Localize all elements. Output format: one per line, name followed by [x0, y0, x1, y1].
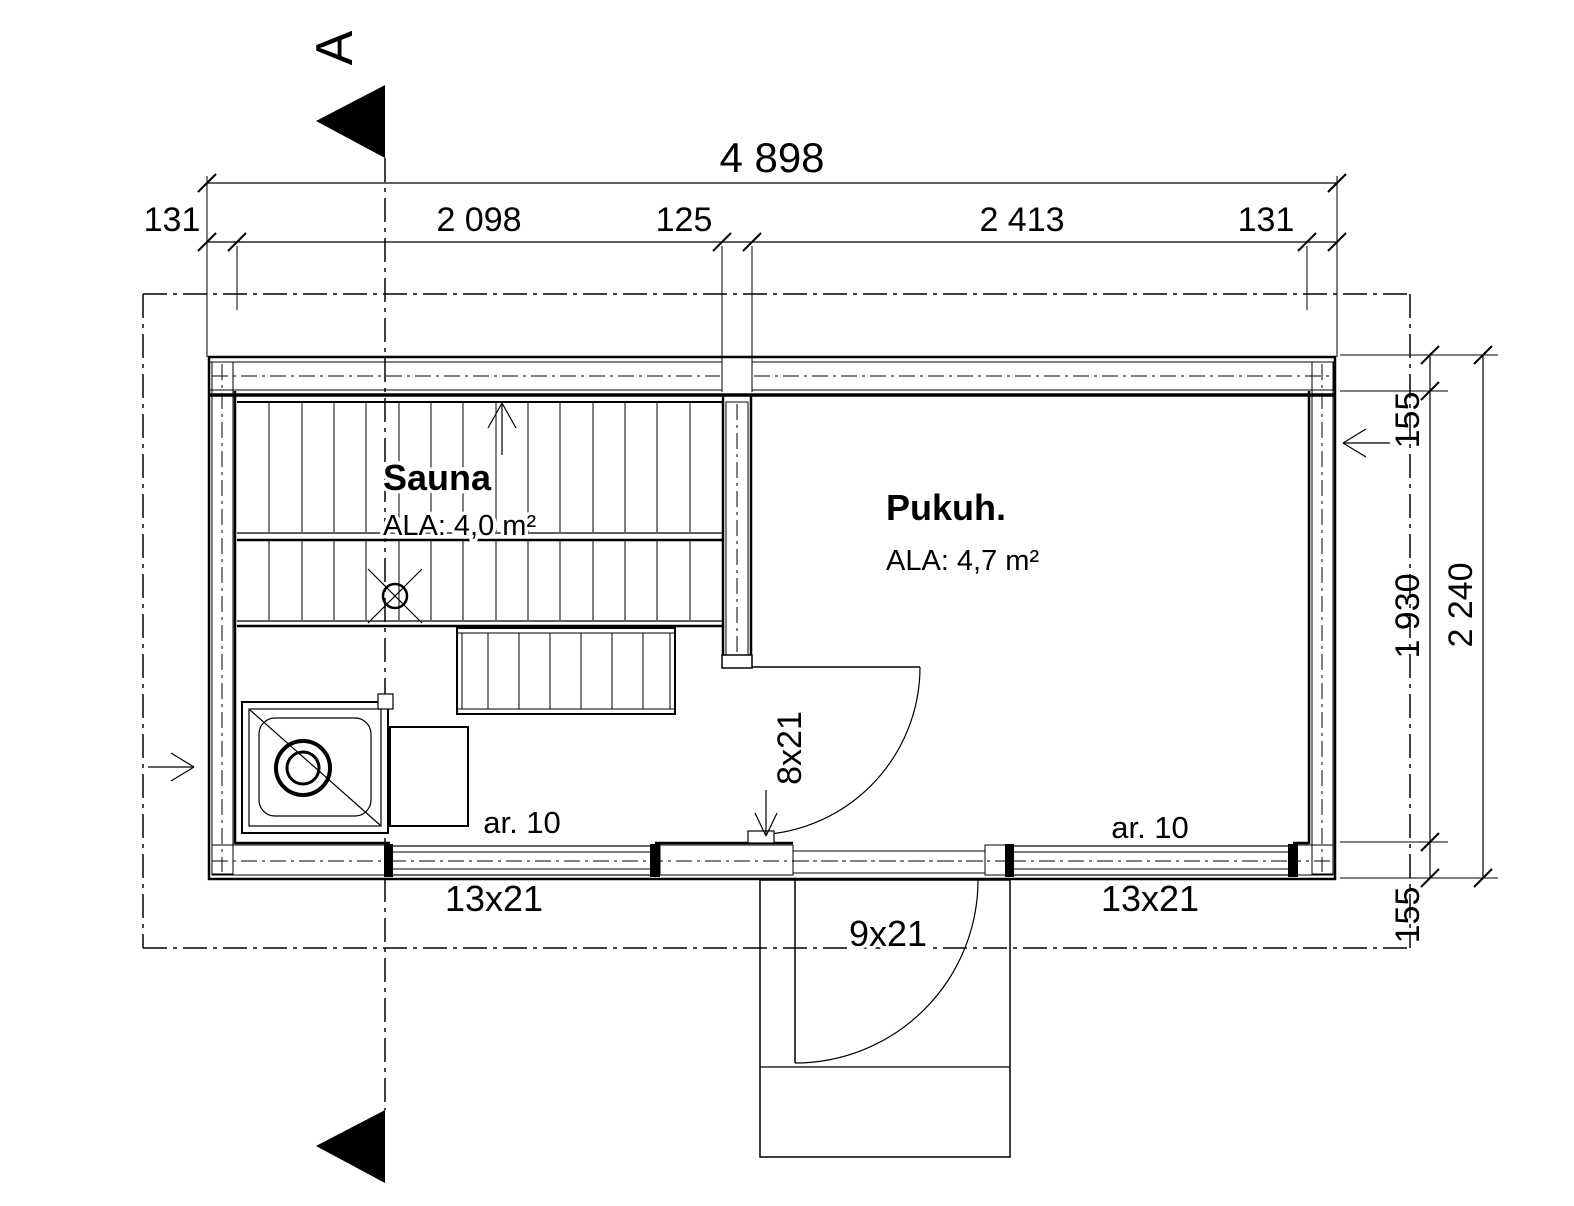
partition-wall [722, 395, 752, 668]
dim-overall-depth: 2 240 [1442, 562, 1480, 647]
vent-label-dressing: ar. 10 [1111, 810, 1189, 845]
section-triangle-bottom-icon [316, 1110, 385, 1183]
dim-overall-width: 4 898 [719, 134, 824, 181]
dim-depth-seg-1: 155 [1389, 392, 1427, 449]
stool [390, 727, 468, 826]
floor-plan-drawing: A A 4 898 131 2 098 125 2 413 131 [0, 0, 1574, 1206]
up-arrow-icon [488, 403, 516, 455]
door-label-interior: 8x21 [771, 711, 809, 785]
window-label-sauna: 13x21 [445, 878, 543, 919]
room-label-dressing: Pukuh. [886, 487, 1006, 528]
dim-width-seg-1: 131 [144, 201, 201, 239]
dimension-right: 155 1 930 155 2 240 [1340, 346, 1498, 943]
vent-label-sauna: ar. 10 [483, 805, 561, 840]
floor-plan-page: A A 4 898 131 2 098 125 2 413 131 [0, 0, 1574, 1206]
step-bench [457, 628, 675, 714]
dimension-top: 4 898 131 2 098 125 2 413 131 [144, 134, 1346, 392]
window-sauna [384, 844, 660, 877]
dim-width-seg-4: 2 413 [979, 201, 1064, 239]
door-label-exterior: 9x21 [849, 913, 927, 954]
right-wall-arrow-icon [1343, 429, 1390, 457]
left-wall-arrow-icon [148, 753, 194, 781]
room-label-sauna: Sauna [383, 457, 492, 498]
area-label-sauna: ALA: 4,0 m² [383, 510, 536, 542]
stove-icon [242, 694, 393, 833]
dim-depth-seg-2: 1 930 [1389, 573, 1427, 658]
section-label-top: A [306, 30, 364, 65]
floor-drain-icon [368, 569, 422, 623]
dim-width-seg-5: 131 [1238, 201, 1295, 239]
section-triangle-top-icon [316, 85, 385, 158]
window-label-dressing: 13x21 [1101, 878, 1199, 919]
dim-width-seg-2: 2 098 [436, 201, 521, 239]
exterior-door [793, 851, 985, 1063]
area-label-dressing: ALA: 4,7 m² [886, 545, 1039, 577]
window-dressing [1005, 844, 1298, 877]
dim-depth-seg-3: 155 [1389, 887, 1427, 944]
exterior-door-swing-arc [795, 880, 978, 1063]
lower-bench-planks [269, 540, 690, 620]
dim-width-seg-3: 125 [656, 201, 713, 239]
